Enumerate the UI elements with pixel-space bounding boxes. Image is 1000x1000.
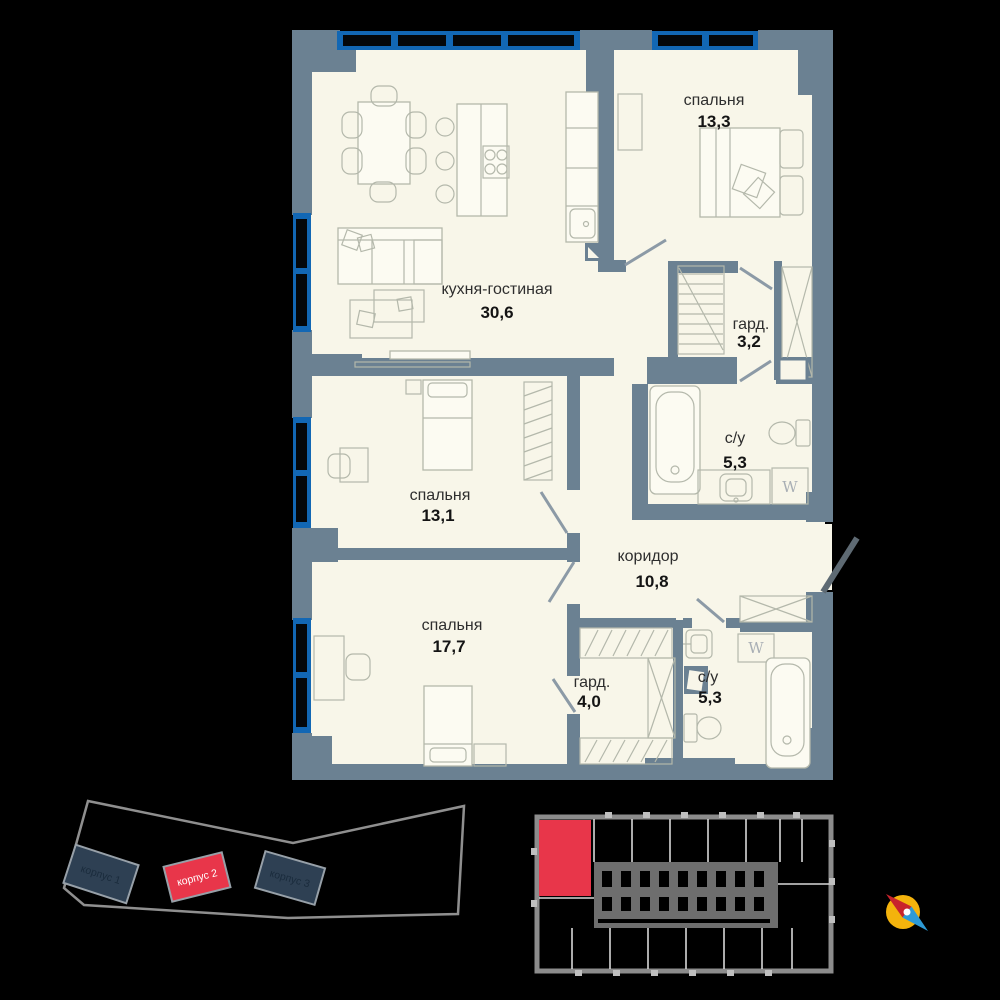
room-label-corridor: коридор (617, 548, 678, 565)
room-area-wardrobe2: 4,0 (577, 692, 601, 711)
room-label-wardrobe2: гард. (574, 674, 611, 691)
room-area-bedroom3: 17,7 (432, 637, 465, 656)
room-label-kitchen-living: кухня-гостиная (441, 281, 552, 298)
compass-rose-icon (886, 894, 928, 931)
room-area-wardrobe1: 3,2 (737, 332, 761, 351)
compass-pivot (904, 909, 911, 916)
bathtub-2 (766, 658, 810, 768)
room-label-bathroom1: с/у (725, 430, 745, 447)
apartment-floorplan: кухня-гостиная 30,6 спальня 13,3 гард. 3… (292, 30, 857, 780)
wall-niche (779, 359, 807, 381)
floor-overview-map (531, 812, 835, 976)
window-top-left (337, 31, 580, 50)
room-label-bathroom2: с/у (698, 669, 718, 686)
washer-label-2: W (748, 639, 764, 657)
apartment-listing-plan: кухня-гостиная 30,6 спальня 13,3 гард. 3… (0, 0, 1000, 1000)
room-label-bedroom3: спальня (422, 617, 483, 634)
washer-label-1: W (782, 478, 798, 496)
tv-console (390, 351, 470, 359)
room-area-corridor: 10,8 (635, 572, 668, 591)
site-plan: корпус 1 корпус 2 корпус 3 (63, 801, 464, 918)
building-marker-1[interactable]: корпус 1 (63, 845, 138, 903)
room-label-bedroom1: спальня (684, 92, 745, 109)
room-area-bathroom2: 5,3 (698, 688, 722, 707)
room-area-bedroom1: 13,3 (697, 112, 730, 131)
building-marker-2-selected[interactable]: корпус 2 (164, 852, 231, 901)
window-top-right (652, 31, 758, 50)
room-label-bedroom2: спальня (410, 487, 471, 504)
window-left-bedroom3 (293, 618, 311, 733)
window-left-bedroom2 (293, 417, 311, 528)
room-area-kitchen-living: 30,6 (480, 303, 513, 322)
window-left-living (293, 213, 311, 332)
room-area-bedroom2: 13,1 (421, 506, 454, 525)
room-label-wardrobe1: гард. (733, 316, 770, 333)
selected-apartment-marker[interactable] (539, 820, 591, 896)
core-block (594, 862, 778, 928)
plan-canvas: кухня-гостиная 30,6 спальня 13,3 гард. 3… (0, 0, 1000, 1000)
building-marker-3[interactable]: корпус 3 (255, 851, 325, 905)
room-area-bathroom1: 5,3 (723, 453, 747, 472)
sofa (338, 228, 442, 284)
bathtub (650, 386, 700, 494)
kitchen-counter (566, 92, 603, 261)
